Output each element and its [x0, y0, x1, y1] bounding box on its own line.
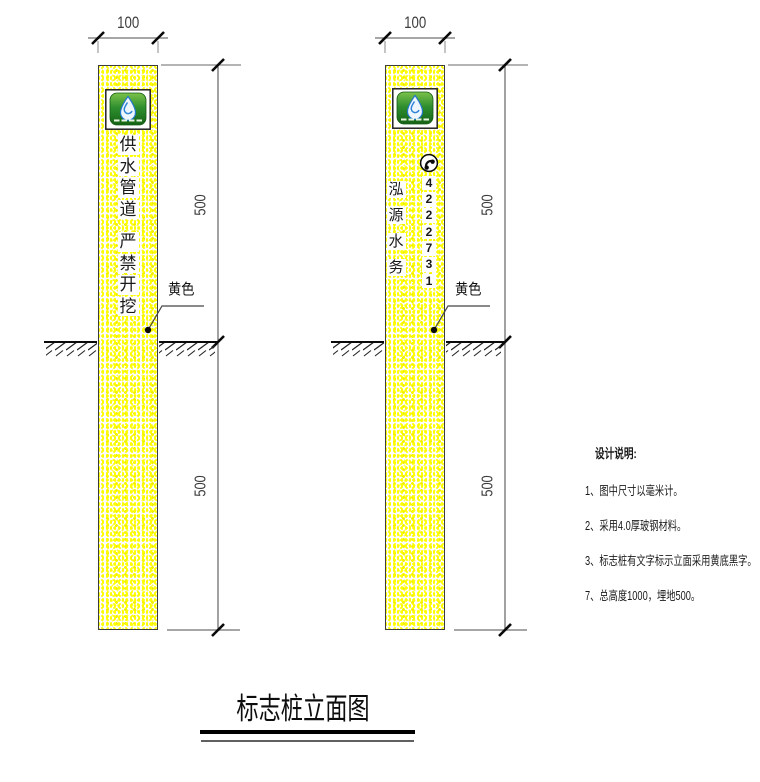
note-item: 1、图中尺寸以毫米计。 [585, 485, 760, 498]
note-item: 2、采用4.0厚玻钢材料。 [585, 520, 760, 533]
marker-post-right [385, 65, 445, 630]
dim-above-ground-right: 500 [470, 182, 506, 228]
drawing-canvas: 供水管道 严禁开挖 泓源水务 4222731 100 100 500 500 5… [0, 0, 760, 782]
dim-width-left: 100 [88, 13, 168, 33]
post-text-no-excavation: 严禁开挖 [98, 231, 158, 317]
dim-width-right: 100 [375, 13, 455, 33]
dim-above-ground-left: 500 [183, 182, 219, 228]
dim-below-ground-left: 500 [183, 463, 219, 509]
color-callout-right: 黄色 [455, 278, 485, 299]
post-text-supply-pipeline: 供水管道 [98, 134, 158, 220]
dim-below-ground-right: 500 [470, 463, 506, 509]
note-item: 3、标志桩有文字标示立面采用黄底黑字。 [585, 555, 760, 568]
company-logo-right [392, 88, 438, 129]
company-logo-left [105, 89, 151, 130]
post-text-company-name: 泓源水务 [383, 176, 409, 280]
drawing-title: 标志桩立面图 [190, 684, 415, 728]
design-notes: 设计说明: 1、图中尺寸以毫米计。 2、采用4.0厚玻钢材料。 3、标志桩有文字… [585, 443, 760, 625]
post-text-phone-number: 4222731 [419, 175, 439, 289]
notes-heading: 设计说明: [595, 443, 760, 462]
note-item: 7、总高度1000，埋地500。 [585, 590, 760, 603]
title-underline [200, 730, 415, 741]
color-callout-left: 黄色 [168, 278, 198, 299]
